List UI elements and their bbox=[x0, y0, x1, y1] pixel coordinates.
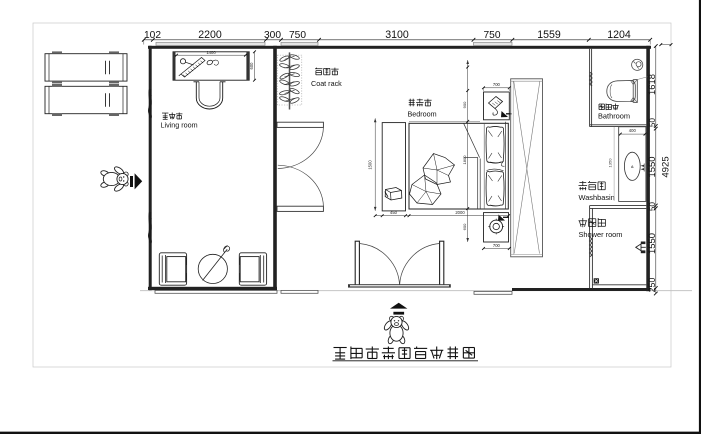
svg-text:1550: 1550 bbox=[646, 233, 657, 254]
svg-text:1618: 1618 bbox=[646, 74, 657, 95]
svg-text:Bedroom: Bedroom bbox=[408, 110, 437, 119]
svg-text:600: 600 bbox=[249, 62, 254, 70]
svg-text:750: 750 bbox=[289, 30, 306, 41]
svg-text:4925: 4925 bbox=[661, 156, 672, 177]
svg-text:1800: 1800 bbox=[462, 155, 467, 165]
svg-text:1350: 1350 bbox=[607, 158, 612, 168]
svg-text:Bathroom: Bathroom bbox=[598, 111, 630, 120]
svg-text:600: 600 bbox=[462, 223, 467, 230]
svg-text:400: 400 bbox=[629, 128, 637, 133]
svg-text:250: 250 bbox=[647, 278, 657, 293]
svg-text:2000: 2000 bbox=[455, 210, 465, 215]
svg-text:1559: 1559 bbox=[537, 29, 561, 41]
svg-text:3100: 3100 bbox=[385, 29, 409, 41]
svg-text:700: 700 bbox=[493, 243, 501, 248]
svg-text:1550: 1550 bbox=[646, 157, 657, 178]
svg-text:1500: 1500 bbox=[368, 160, 373, 170]
svg-text:900: 900 bbox=[462, 101, 467, 108]
svg-text:1204: 1204 bbox=[607, 29, 631, 41]
svg-text:102: 102 bbox=[144, 30, 161, 41]
svg-text:Washbasin: Washbasin bbox=[579, 193, 615, 202]
svg-text:750: 750 bbox=[484, 30, 501, 41]
svg-text:2200: 2200 bbox=[198, 29, 222, 41]
svg-text:300: 300 bbox=[264, 30, 281, 41]
svg-text:50: 50 bbox=[648, 118, 657, 127]
svg-text:450: 450 bbox=[390, 210, 398, 215]
svg-text:700: 700 bbox=[493, 82, 501, 87]
svg-text:Living room: Living room bbox=[161, 121, 198, 130]
svg-text:Coat rack: Coat rack bbox=[311, 79, 342, 88]
svg-text:Shower room: Shower room bbox=[579, 230, 623, 239]
svg-text:1400: 1400 bbox=[206, 50, 216, 55]
svg-text:50: 50 bbox=[648, 202, 657, 211]
